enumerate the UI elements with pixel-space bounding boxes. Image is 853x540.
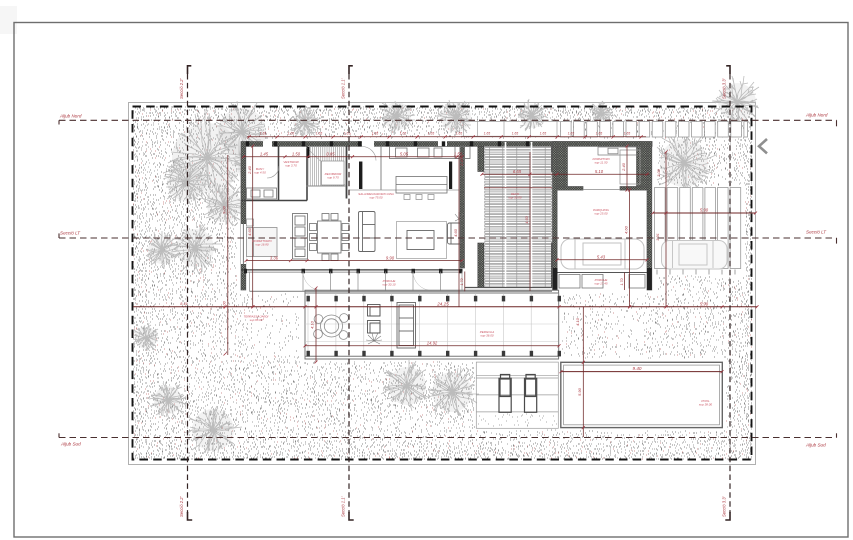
svg-text:3.00: 3.00 <box>657 168 661 176</box>
svg-text:4.60: 4.60 <box>624 225 629 234</box>
svg-text:sup 30.00: sup 30.00 <box>508 196 522 200</box>
svg-text:sup 4.50: sup 4.50 <box>254 171 266 175</box>
svg-text:4.10: 4.10 <box>575 317 580 326</box>
svg-text:sup 11.50: sup 11.50 <box>595 161 608 165</box>
svg-text:1.65: 1.65 <box>400 131 407 135</box>
svg-text:5.05: 5.05 <box>400 151 409 156</box>
svg-text:4.10: 4.10 <box>310 320 315 329</box>
svg-text:1.65: 1.65 <box>484 131 491 135</box>
svg-text:5.90: 5.90 <box>700 208 709 213</box>
svg-text:sup 3.70: sup 3.70 <box>285 164 297 168</box>
svg-text:2.40: 2.40 <box>621 162 626 172</box>
svg-text:4.60: 4.60 <box>453 228 458 237</box>
svg-text:sup 17.45: sup 17.45 <box>594 282 608 286</box>
svg-text:4.60: 4.60 <box>247 227 252 236</box>
svg-text:Secció 3.3': Secció 3.3' <box>722 78 727 99</box>
svg-text:Aljub Sud: Aljub Sud <box>60 442 81 447</box>
svg-text:sup 16.80: sup 16.80 <box>255 243 269 247</box>
svg-text:9.40: 9.40 <box>633 366 642 371</box>
svg-text:1.50: 1.50 <box>454 151 463 156</box>
svg-text:2.40: 2.40 <box>460 157 464 166</box>
svg-text:1.65: 1.65 <box>624 131 631 135</box>
svg-text:Secció LT: Secció LT <box>806 230 827 235</box>
svg-text:5.10: 5.10 <box>595 169 604 174</box>
svg-text:6.65: 6.65 <box>513 169 522 174</box>
svg-text:sup 88.00: sup 88.00 <box>250 318 263 322</box>
svg-text:sup 36.00: sup 36.00 <box>480 334 494 338</box>
svg-text:sup 30.10: sup 30.10 <box>382 283 396 287</box>
svg-text:9.00: 9.00 <box>222 205 226 213</box>
svg-text:2.40: 2.40 <box>247 165 252 175</box>
svg-text:Secció 2.2': Secció 2.2' <box>179 78 184 99</box>
svg-text:sup 75.00: sup 75.00 <box>369 196 383 200</box>
svg-text:Secció LT: Secció LT <box>60 231 81 236</box>
svg-text:Aljub Sud: Aljub Sud <box>805 443 826 448</box>
svg-text:1.65: 1.65 <box>372 131 379 135</box>
svg-text:sup 38.00: sup 38.00 <box>699 403 713 407</box>
svg-text:Secció 1.1': Secció 1.1' <box>341 78 346 99</box>
svg-text:1.50: 1.50 <box>292 151 301 156</box>
svg-text:5.90: 5.90 <box>700 301 709 306</box>
svg-text:Aljub Nord: Aljub Nord <box>805 113 828 118</box>
svg-text:24.25: 24.25 <box>436 301 449 306</box>
svg-text:1.65: 1.65 <box>568 131 575 135</box>
svg-text:1.65: 1.65 <box>596 131 603 135</box>
svg-text:14.92: 14.92 <box>427 341 438 346</box>
svg-text:1.65: 1.65 <box>540 131 547 135</box>
svg-text:3.91: 3.91 <box>656 233 660 240</box>
svg-text:3.36: 3.36 <box>270 255 279 260</box>
svg-text:sup 9.75: sup 9.75 <box>327 176 339 180</box>
svg-text:0.85: 0.85 <box>326 151 335 156</box>
svg-text:9.90: 9.90 <box>386 255 395 260</box>
svg-text:4.60: 4.60 <box>525 215 529 223</box>
svg-text:1.65: 1.65 <box>456 131 463 135</box>
svg-text:Secció 3.3': Secció 3.3' <box>722 496 727 517</box>
svg-text:Aljub Nord: Aljub Nord <box>59 114 82 119</box>
svg-text:8.41: 8.41 <box>180 302 187 306</box>
svg-text:1.65: 1.65 <box>288 131 295 135</box>
svg-text:1.70: 1.70 <box>460 279 464 286</box>
svg-text:1.45: 1.45 <box>260 151 269 156</box>
svg-text:Secció 1.1': Secció 1.1' <box>341 496 346 517</box>
svg-text:5.43: 5.43 <box>597 255 606 260</box>
svg-text:1.65: 1.65 <box>428 131 435 135</box>
svg-text:Secció 2.2': Secció 2.2' <box>179 496 184 517</box>
svg-text:5.90: 5.90 <box>577 387 582 396</box>
svg-text:sup 25.00: sup 25.00 <box>594 212 608 216</box>
svg-text:4.00: 4.00 <box>222 300 226 308</box>
svg-text:1.65: 1.65 <box>260 131 267 135</box>
svg-text:1.65: 1.65 <box>512 131 519 135</box>
svg-text:1.65: 1.65 <box>316 131 323 135</box>
svg-text:1.70: 1.70 <box>620 279 624 286</box>
